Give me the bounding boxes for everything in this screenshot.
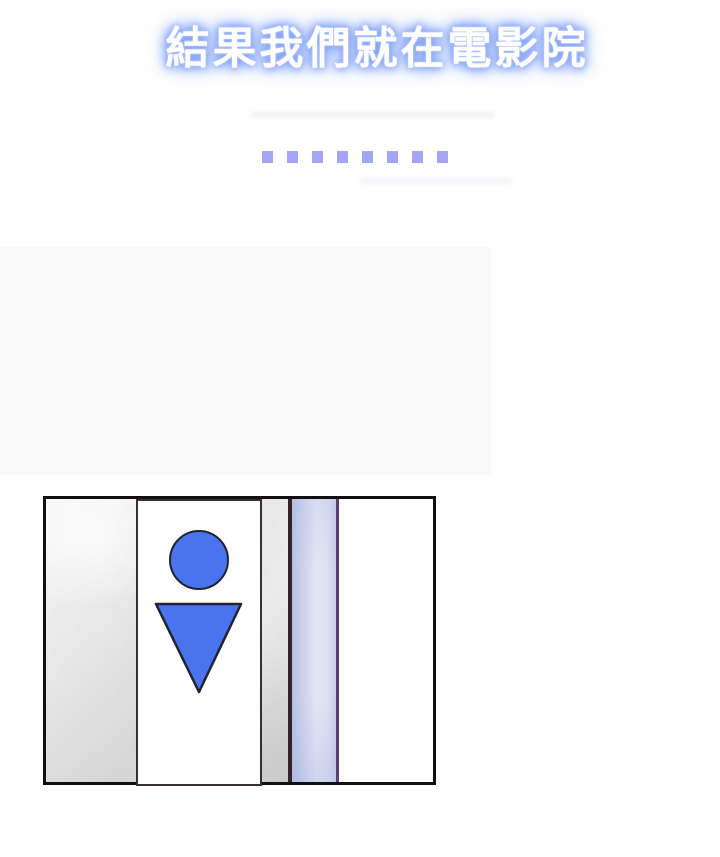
ellipsis-dot bbox=[412, 151, 423, 163]
icon-body-triangle bbox=[156, 604, 241, 692]
ellipsis-dot bbox=[362, 151, 373, 163]
faded-bubble-remnant-upper bbox=[250, 112, 495, 118]
door-frame-strip bbox=[292, 499, 336, 782]
icon-head-circle bbox=[170, 531, 228, 589]
ellipsis-dots bbox=[262, 151, 448, 163]
comic-panel bbox=[43, 496, 436, 785]
ellipsis-dot bbox=[287, 151, 298, 163]
ellipsis-dot bbox=[262, 151, 273, 163]
ellipsis-dot bbox=[337, 151, 348, 163]
ellipsis-dot bbox=[437, 151, 448, 163]
faded-bubble-remnant-lower bbox=[360, 178, 512, 184]
male-restroom-icon bbox=[138, 501, 260, 716]
caption-title: 結果我們就在電影院 bbox=[17, 12, 720, 76]
ellipsis-dot bbox=[387, 151, 398, 163]
faded-panel-area bbox=[0, 247, 491, 475]
ellipsis-dot bbox=[312, 151, 323, 163]
restroom-sign bbox=[136, 499, 262, 786]
doorway-white-area bbox=[339, 499, 433, 782]
